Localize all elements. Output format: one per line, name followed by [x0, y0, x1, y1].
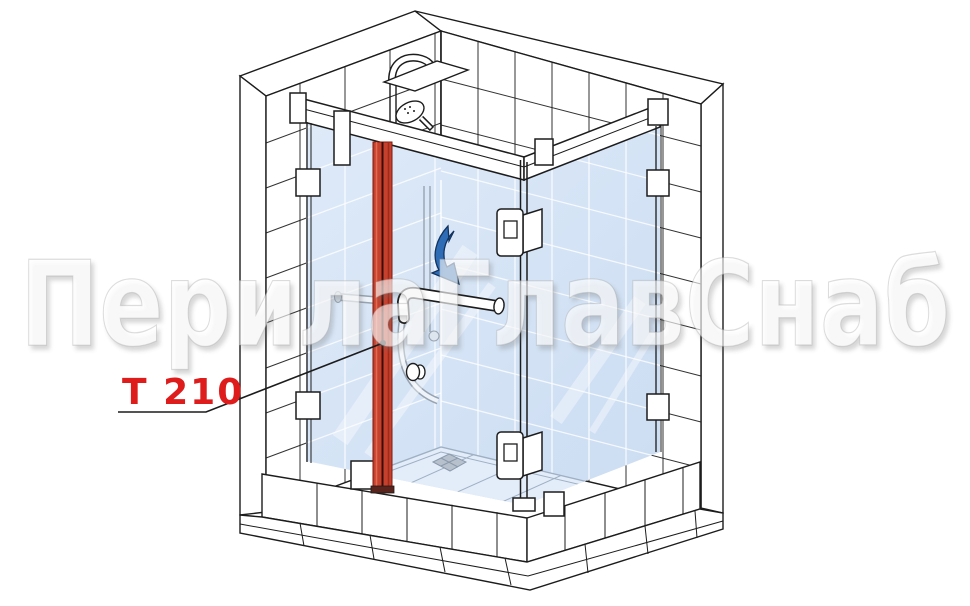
wall-bracket [647, 394, 669, 420]
header-wall-mount-right [648, 99, 668, 125]
header-wall-mount [290, 93, 306, 123]
watermark: ПерилаГлавСнаб [20, 235, 950, 373]
floor-bracket [544, 492, 564, 516]
callout-label: T 210 [122, 372, 244, 413]
corner-top-connector [535, 139, 553, 165]
wall-bracket [296, 169, 320, 196]
header-glass-clamp [334, 111, 350, 165]
shower-enclosure-diagram: T 210 ПерилаГлавСнаб [0, 0, 970, 606]
door-hinge-bottom [497, 432, 542, 479]
t210-profile-foot [371, 486, 394, 493]
floor-bracket [351, 461, 374, 489]
wall-bracket [647, 170, 669, 196]
wall-bracket [296, 392, 320, 419]
